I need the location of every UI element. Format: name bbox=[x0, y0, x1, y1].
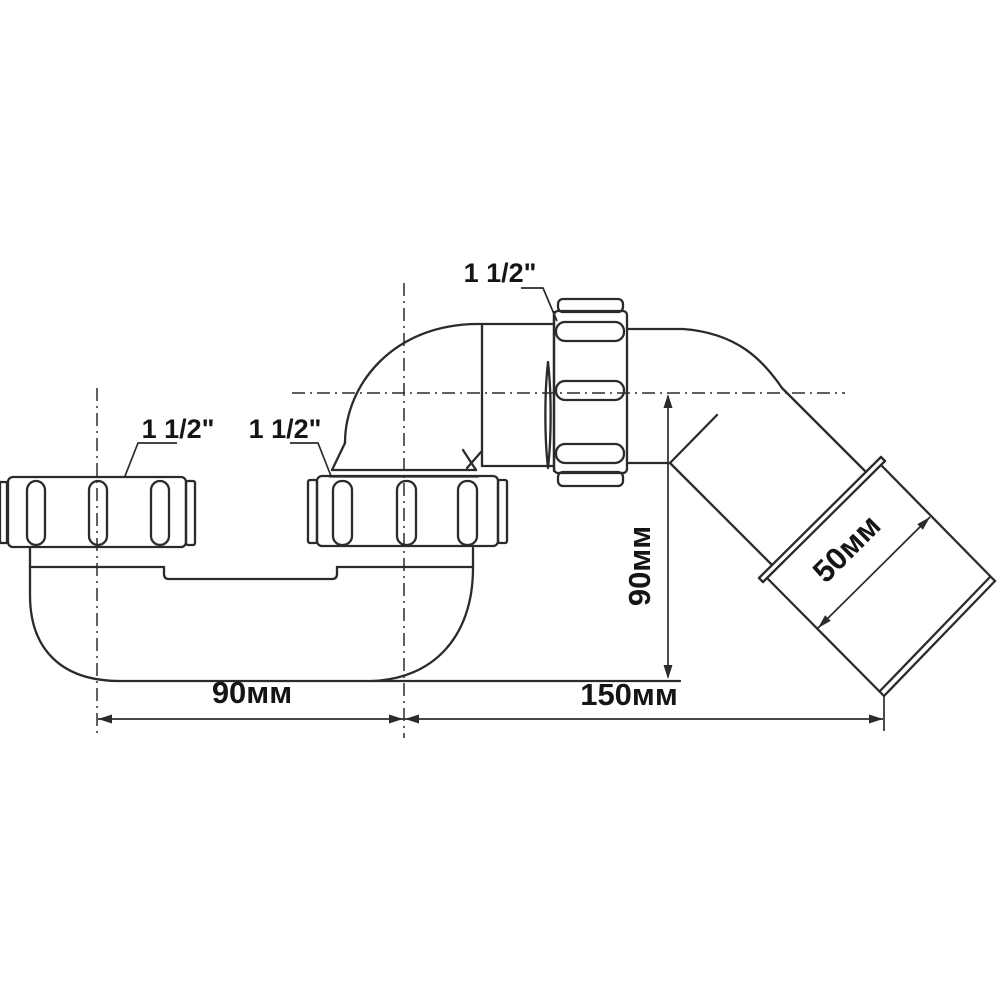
compression-olive-seal bbox=[545, 362, 550, 468]
nut-body bbox=[317, 476, 498, 546]
pipe-end-face-inner bbox=[880, 577, 990, 691]
thread-label-left: 1 1/2" bbox=[142, 414, 215, 444]
nut-body bbox=[554, 311, 627, 473]
flare-left-slant bbox=[332, 443, 345, 470]
arrowhead-left bbox=[98, 715, 112, 724]
arrowhead-right bbox=[389, 715, 403, 724]
elbow-outer-curve bbox=[683, 329, 782, 388]
nut-grip-slot bbox=[556, 322, 624, 341]
nut-body bbox=[8, 477, 186, 547]
nut-grip-slot bbox=[397, 481, 416, 545]
nut-grip-slot bbox=[89, 481, 107, 545]
bowl-right-arc bbox=[372, 568, 473, 681]
leader-line-left bbox=[125, 443, 177, 476]
nut-end-cap bbox=[0, 482, 7, 543]
outlet-elbow bbox=[627, 329, 866, 565]
thread-label-top: 1 1/2" bbox=[464, 258, 537, 288]
dimension-outlet-diameter: 50мм bbox=[806, 508, 930, 628]
trap-technical-drawing: 90мм 150мм 90мм 50мм 1 1/2" 1 1/2" 1 1/2… bbox=[0, 0, 1000, 1000]
drawing-canvas: 90мм 150мм 90мм 50мм 1 1/2" 1 1/2" 1 1/2… bbox=[0, 0, 1000, 1000]
dimension-text-90mm-bottom: 90мм bbox=[212, 675, 292, 710]
trap-nut-left bbox=[0, 477, 195, 547]
union-nut bbox=[554, 299, 627, 486]
dimension-text-150mm: 150мм bbox=[580, 677, 678, 712]
nut-grip-slot bbox=[458, 481, 477, 545]
nut-grip-slot bbox=[556, 444, 624, 463]
nut-grip-slot bbox=[333, 481, 352, 545]
trap-nut-right bbox=[308, 476, 507, 546]
pipe-upper-wall bbox=[881, 465, 995, 581]
nut-grip-slot bbox=[556, 381, 624, 400]
flange-end-cap bbox=[881, 457, 885, 461]
nut-grip-slot bbox=[151, 481, 169, 545]
elbow-outer-wall bbox=[782, 388, 866, 472]
body-bridge-channel bbox=[164, 567, 337, 579]
leader-line-top bbox=[521, 288, 557, 321]
outlet-pipe-50mm bbox=[768, 465, 995, 696]
dimension-height: 90мм bbox=[622, 394, 673, 679]
nut-end-cap bbox=[308, 480, 317, 543]
elbow-inner-wall bbox=[670, 463, 772, 565]
nut-grip-slot bbox=[27, 481, 45, 545]
flange-end-cap bbox=[759, 578, 763, 582]
thread-label-middle: 1 1/2" bbox=[249, 414, 322, 444]
nut-end-cap bbox=[186, 481, 195, 545]
leader-line-middle bbox=[290, 443, 331, 476]
pipe-lower-wall bbox=[768, 579, 884, 696]
elbow-inner-crease bbox=[670, 415, 717, 463]
dimension-text-90mm-vertical: 90мм bbox=[622, 526, 657, 606]
bowl-left-arc bbox=[30, 595, 120, 681]
dimension-bottom: 90мм 150мм bbox=[98, 675, 884, 731]
arrowhead-right bbox=[869, 715, 883, 724]
trap-bowl-body bbox=[30, 548, 680, 681]
inlet-riser-elbow bbox=[330, 312, 554, 477]
nut-end-cap bbox=[498, 480, 507, 543]
pipe-end-face-outer bbox=[884, 581, 995, 696]
arrowhead-up bbox=[664, 394, 673, 408]
arrowhead-left bbox=[405, 715, 419, 724]
thread-callouts: 1 1/2" 1 1/2" 1 1/2" bbox=[125, 258, 557, 476]
elbow-outer-arc bbox=[345, 324, 478, 443]
centerlines bbox=[97, 283, 845, 738]
